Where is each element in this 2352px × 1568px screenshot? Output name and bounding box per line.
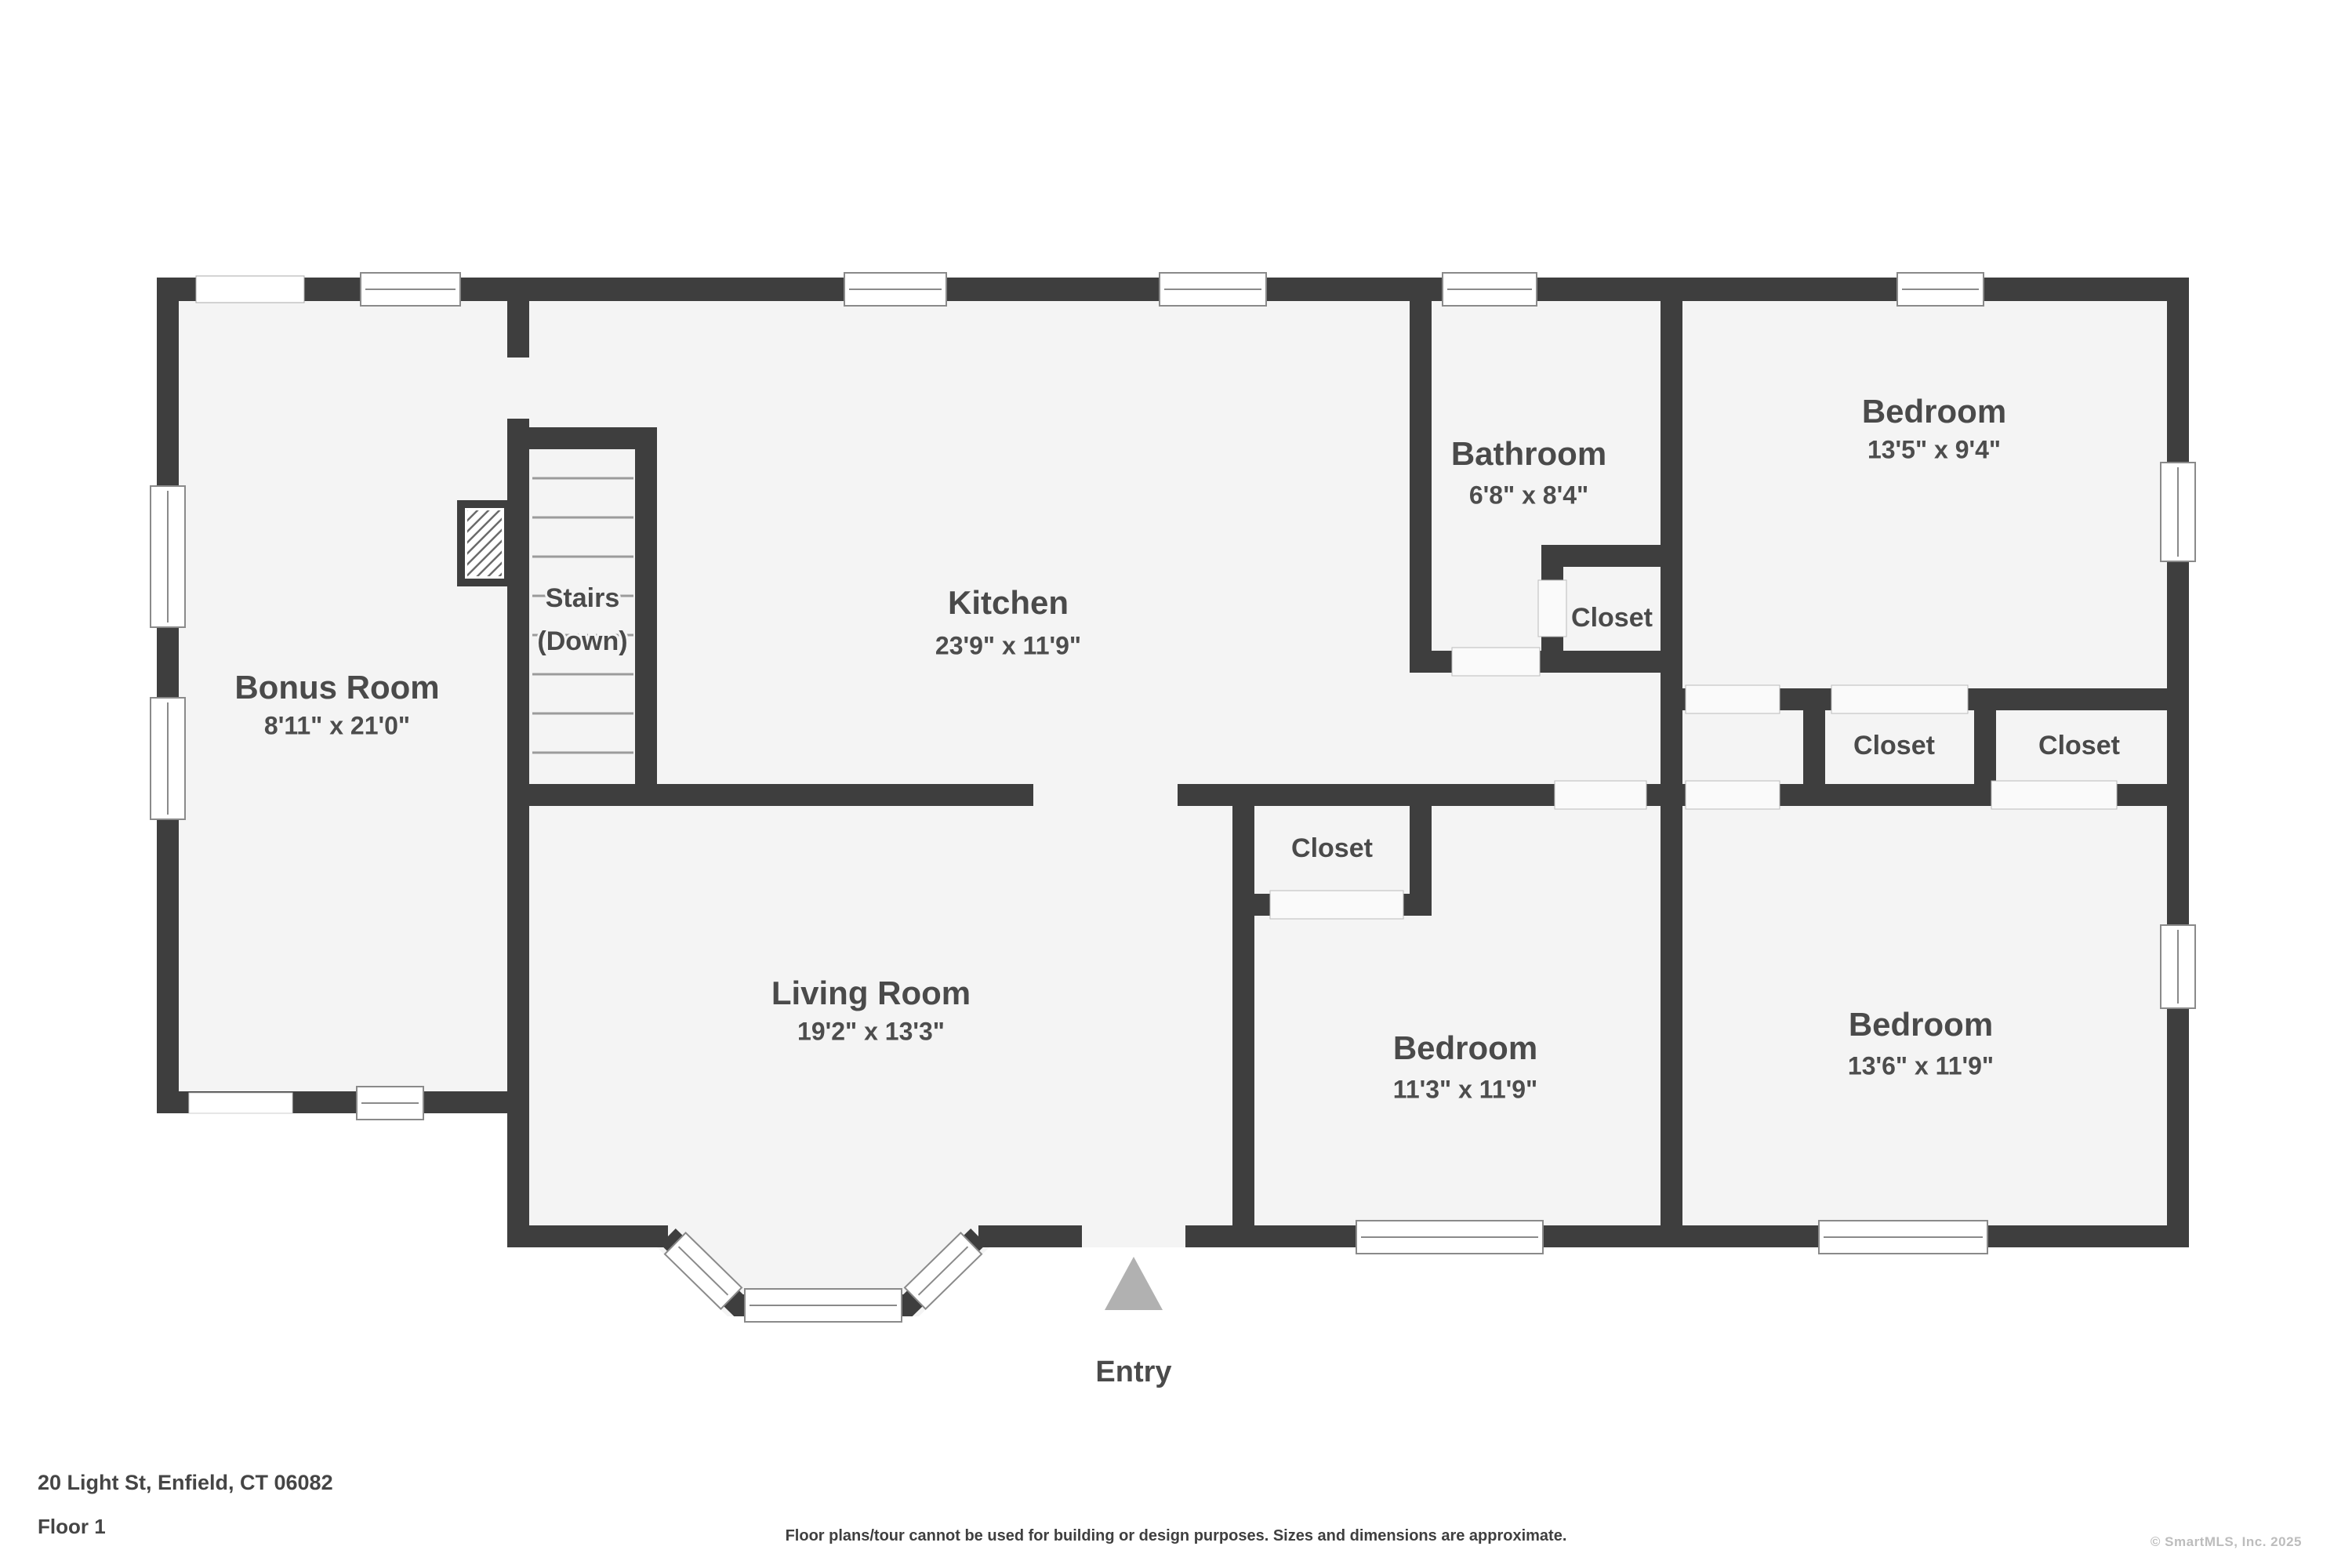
wall-bathroom-bottom-1 bbox=[1410, 651, 1452, 673]
room-label-bonus: Bonus Room bbox=[234, 669, 439, 706]
window-bay-bottom bbox=[745, 1289, 902, 1322]
window-bathroom-top bbox=[1443, 273, 1537, 306]
door-hall-closet bbox=[1270, 891, 1403, 919]
door-closet-upper-left bbox=[1831, 685, 1968, 713]
entry-arrow-icon bbox=[1105, 1257, 1163, 1310]
window-bonus-bottom bbox=[357, 1087, 423, 1120]
wall-mid-5 bbox=[2117, 784, 2167, 806]
room-dims-bedroom-top-right: 13'5" x 9'4" bbox=[1867, 435, 2001, 463]
room-label-bedroom-middle: Bedroom bbox=[1393, 1029, 1537, 1066]
room-label-kitchen: Kitchen bbox=[948, 584, 1069, 621]
disclaimer-text: Floor plans/tour cannot be used for buil… bbox=[0, 1527, 2352, 1545]
room-dims-bathroom: 6'8" x 8'4" bbox=[1469, 481, 1588, 509]
stairs-label-line2: (Down) bbox=[537, 626, 627, 656]
wall-bottom-right bbox=[1185, 1225, 2167, 1247]
window-kitchen-2 bbox=[1160, 273, 1266, 306]
room-label-bathroom: Bathroom bbox=[1451, 435, 1606, 472]
stairs-label-line1: Stairs bbox=[546, 583, 620, 613]
wall-bathroom-left bbox=[1410, 301, 1432, 673]
wall-bottom-left bbox=[529, 1225, 668, 1247]
floor-plan-page: { "rooms": { "bonus": {"name": "Bonus Ro… bbox=[0, 0, 2352, 1568]
window-bedroom-tr-right bbox=[2161, 463, 2195, 561]
window-bonus-bottom-gap bbox=[189, 1093, 292, 1113]
room-dims-bedroom-bottom-right: 13'6" x 11'9" bbox=[1848, 1051, 1994, 1080]
floor-plan: Bonus Room 8'11" x 21'0" Kitchen 23'9" x… bbox=[0, 0, 2352, 1568]
window-kitchen-1 bbox=[844, 273, 946, 306]
wall-bottom-mid bbox=[978, 1225, 1082, 1247]
wall-divider-upper bbox=[507, 278, 529, 359]
wall-closetpair-left bbox=[1803, 688, 1825, 806]
room-dims-bedroom-middle: 11'3" x 11'9" bbox=[1393, 1075, 1537, 1103]
door-bath-closet bbox=[1538, 580, 1566, 637]
door-bedroom-top-right bbox=[1686, 685, 1780, 713]
closet-label-upper-right: Closet bbox=[2038, 731, 2120, 760]
wall-left bbox=[157, 278, 179, 1113]
room-label-bedroom-top-right: Bedroom bbox=[1862, 393, 2006, 430]
door-closet-upper-right bbox=[1991, 781, 2117, 809]
window-bonus-top-gap bbox=[196, 276, 304, 303]
closet-label-upper-left: Closet bbox=[1853, 731, 1935, 760]
door-bathroom bbox=[1452, 648, 1540, 676]
wall-bedrooms-divider bbox=[1661, 301, 1682, 1225]
wall-trbed-bottom-3 bbox=[1968, 688, 2189, 710]
window-bonus-top bbox=[361, 273, 460, 306]
room-dims-kitchen: 23'9" x 11'9" bbox=[935, 631, 1081, 659]
room-label-living: Living Room bbox=[771, 975, 971, 1011]
wall-hallcloset-right bbox=[1410, 806, 1432, 894]
window-bonus-left-1 bbox=[151, 486, 185, 627]
wall-stairs-right bbox=[635, 427, 657, 806]
wall-right bbox=[2167, 278, 2189, 1247]
closet-label-bathroom: Closet bbox=[1571, 603, 1653, 633]
entry-label: Entry bbox=[1095, 1356, 1171, 1388]
wall-living-divider bbox=[1232, 784, 1254, 1225]
window-bonus-left-2 bbox=[151, 698, 185, 819]
wall-trbed-bottom-1 bbox=[1661, 688, 1686, 710]
door-bedroom-middle bbox=[1555, 781, 1646, 809]
window-bedroom-br-bottom bbox=[1819, 1221, 1987, 1254]
address-text: 20 Light St, Enfield, CT 06082 bbox=[38, 1471, 333, 1495]
chimney-box bbox=[461, 504, 508, 583]
wall-mid-1 bbox=[507, 784, 1033, 806]
door-bonus-kitchen bbox=[506, 358, 531, 419]
room-dims-bonus: 8'11" x 21'0" bbox=[264, 711, 410, 739]
wall-hallcloset-bottom-2 bbox=[1403, 894, 1432, 916]
room-dims-living: 19'2" x 13'3" bbox=[797, 1017, 945, 1045]
window-bedroom-tr-top bbox=[1897, 273, 1984, 306]
closet-label-hall: Closet bbox=[1291, 833, 1373, 863]
copyright-text: © SmartMLS, Inc. 2025 bbox=[2151, 1534, 2302, 1550]
window-bedroom-br-right bbox=[2161, 925, 2195, 1008]
window-bedroom-mid-bottom bbox=[1356, 1221, 1543, 1254]
door-bedroom-bottom-right bbox=[1686, 781, 1780, 809]
room-label-bedroom-bottom-right: Bedroom bbox=[1849, 1006, 1993, 1043]
